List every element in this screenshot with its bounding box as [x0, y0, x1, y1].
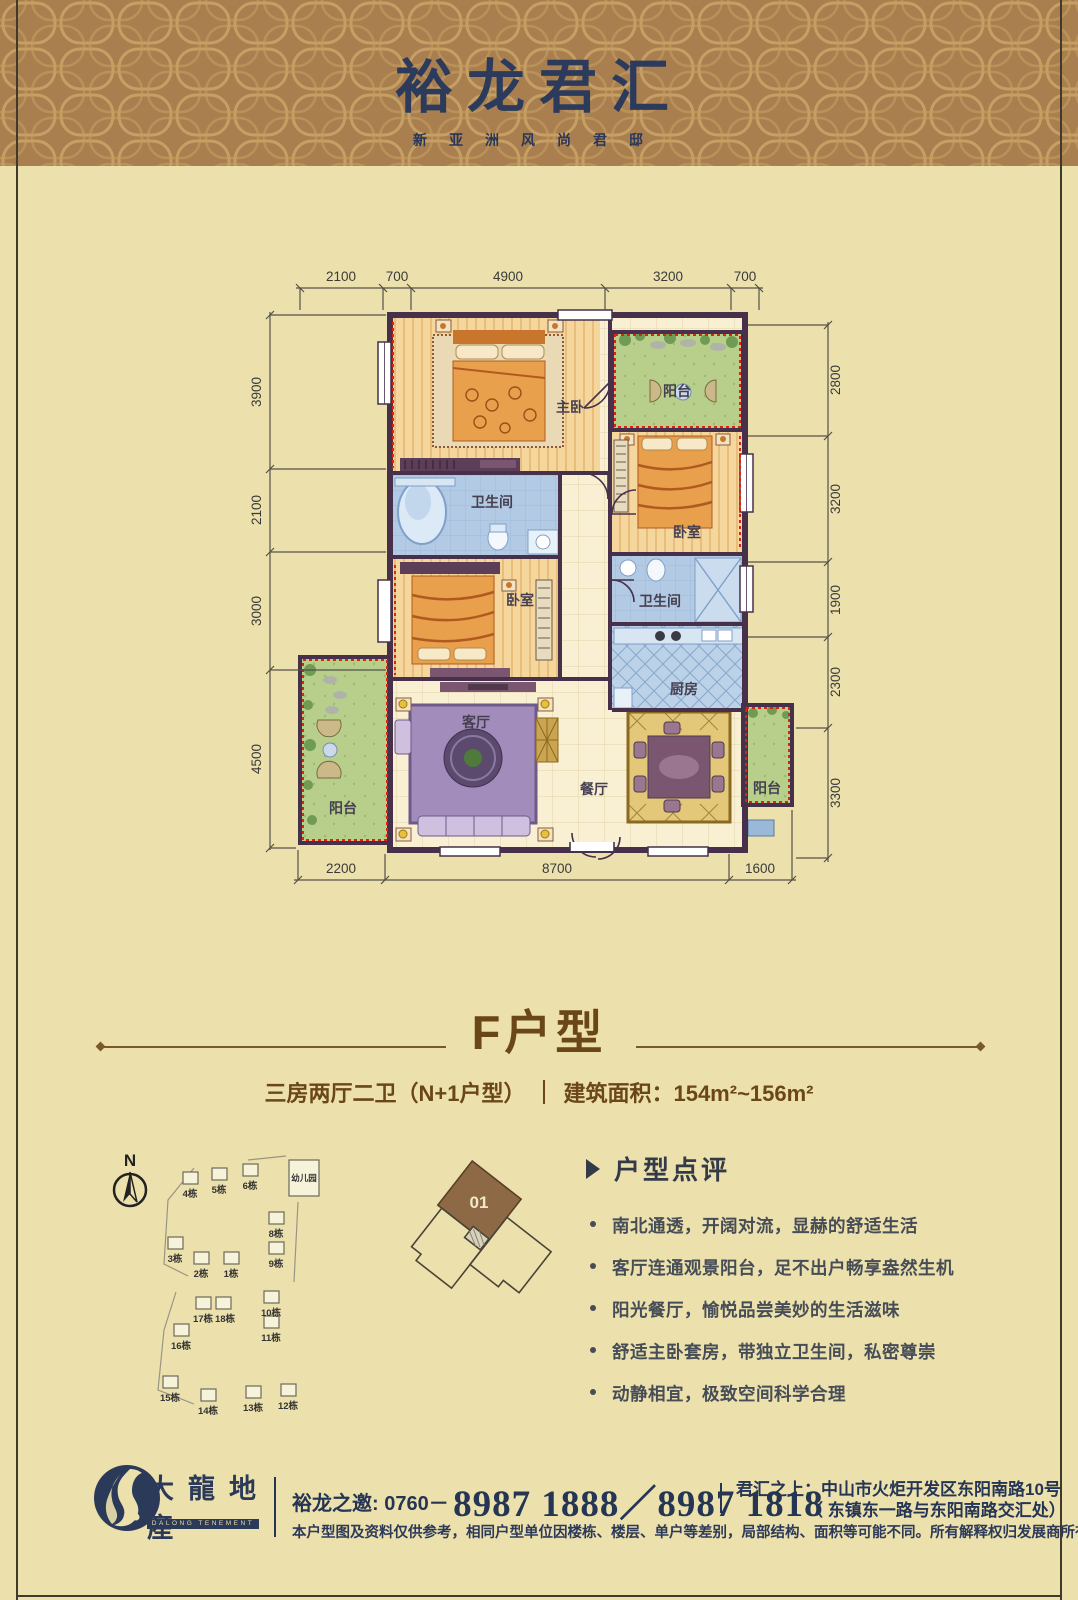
room-label-living: 客厅	[461, 714, 490, 730]
review-point: 客厅连通观景阳台，足不出户畅享盎然生机	[586, 1255, 1006, 1280]
address-line1: 中山市火炬开发区东阳南路10号	[821, 1480, 1061, 1499]
frame-right	[1060, 0, 1062, 1600]
building-label: 13栋	[243, 1402, 264, 1414]
review-point-text: 阳光餐厅，愉悦品尝美妙的生活滋味	[612, 1297, 900, 1322]
building-label: 11栋	[261, 1332, 281, 1344]
unit-title-block: F户型 三房两厅二卫（N+1户型） 建筑面积：154m²~156m²	[0, 1002, 1078, 1108]
review-list: 南北通透，开阔对流，显赫的舒适生活 客厅连通观景阳台，足不出户畅享盎然生机 阳光…	[586, 1213, 1006, 1406]
dim-right-3: 2300	[828, 667, 843, 697]
unit-name: F户型	[0, 1002, 1078, 1064]
building-label: 1栋	[224, 1268, 239, 1280]
review-point: 舒适主卧套房，带独立卫生间，私密尊崇	[586, 1339, 1006, 1364]
building-label: 2栋	[194, 1268, 209, 1280]
building-label: 9栋	[269, 1258, 284, 1270]
room-label-bedroom-right: 卧室	[673, 524, 701, 540]
room-label-bedroom-left: 卧室	[506, 592, 534, 608]
review-point: 阳光餐厅，愉悦品尝美妙的生活滋味	[586, 1297, 1006, 1322]
bullet-dot-icon	[590, 1389, 596, 1395]
building-label: 8栋	[269, 1228, 284, 1240]
living-furniture	[395, 682, 558, 841]
building-label: 6栋	[243, 1180, 258, 1192]
header-band: 裕龙君汇 新亚洲风尚君邸	[0, 0, 1078, 166]
project-logo-subtitle: 新亚洲风尚君邸	[0, 130, 1078, 150]
review-point-text: 客厅连通观景阳台，足不出户畅享盎然生机	[612, 1255, 954, 1280]
dim-right-1: 3200	[828, 484, 843, 514]
footer-divider-2	[720, 1483, 722, 1513]
north-compass: N	[114, 1151, 146, 1206]
building-label: 10栋	[261, 1307, 282, 1319]
building-label: 15栋	[160, 1392, 181, 1404]
room-label-balcony-right: 阳台	[753, 780, 781, 796]
room-label-bath-left: 卫生间	[471, 494, 513, 510]
dim-right-4: 3300	[828, 778, 843, 808]
dim-bottom-1: 8700	[542, 861, 572, 876]
room-label-balcony-top: 阳台	[663, 383, 691, 399]
key-plan: 01	[378, 1140, 573, 1315]
room-label-kitchen: 厨房	[670, 681, 698, 697]
building-label: 4栋	[183, 1188, 198, 1200]
frame-bottom	[16, 1595, 1062, 1597]
review-header: 户型点评	[586, 1150, 1006, 1187]
site-boundary	[158, 1156, 298, 1404]
disclaimer-text: 本户型图及资料仅供参考，相同户型单位因楼栋、楼层、单户等差别，局部结构、面积等可…	[292, 1521, 1078, 1542]
review-title: 户型点评	[614, 1150, 730, 1187]
title-line-right	[636, 1046, 978, 1048]
site-plan: N 4栋 5栋 6栋	[98, 1142, 333, 1437]
address-line2: （ 东镇东一路与东阳南路交汇处）	[736, 1500, 1066, 1521]
poster-page: 裕龙君汇 新亚洲风尚君邸	[0, 0, 1078, 1600]
review-block: 户型点评 南北通透，开阔对流，显赫的舒适生活 客厅连通观景阳台，足不出户畅享盎然…	[586, 1150, 1006, 1423]
review-point-text: 动静相宜，极致空间科学合理	[612, 1381, 846, 1406]
building-label: 17栋	[193, 1313, 214, 1325]
bullet-dot-icon	[590, 1263, 596, 1269]
review-point-text: 南北通透，开阔对流，显赫的舒适生活	[612, 1213, 918, 1238]
review-point: 南北通透，开阔对流，显赫的舒适生活	[586, 1213, 1006, 1238]
room-label-balcony-left: 阳台	[329, 800, 357, 816]
title-line-left	[104, 1046, 446, 1048]
dim-top-0: 2100	[326, 269, 356, 284]
building-label: 16栋	[171, 1340, 192, 1352]
room-label-master: 主卧	[556, 399, 584, 415]
dim-left-0: 3900	[249, 377, 264, 407]
site-buildings: 4栋 5栋 6栋 3栋 2栋 1栋 8栋 9栋 17栋 18栋 16栋 10栋 …	[160, 1160, 319, 1417]
triangle-bullet-icon	[586, 1159, 600, 1179]
bullet-dot-icon	[590, 1221, 596, 1227]
spec-divider	[543, 1080, 545, 1104]
location-block: 君汇之上：中山市火炬开发区东阳南路10号 （ 东镇东一路与东阳南路交汇处）	[736, 1479, 1066, 1521]
dim-top-4: 700	[734, 269, 757, 284]
room-label-bath-right: 卫生间	[639, 593, 681, 609]
project-logo-title: 裕龙君汇	[0, 40, 1078, 124]
unit-area: 建筑面积：154m²~156m²	[563, 1076, 813, 1108]
location-line1: 君汇之上：中山市火炬开发区东阳南路10号	[736, 1479, 1066, 1500]
location-label: 君汇之上：	[736, 1480, 821, 1499]
footer: 大龍地産 DALONG TENEMENT 裕龙之邀: 0760－ 8987 18…	[0, 1455, 1078, 1565]
floorplan-drawing: 主卧 阳台 卧室 卫生间 卧室 卫生间 厨房 客厅 餐厅 阳台 阳台	[240, 250, 860, 900]
room-label-dining: 餐厅	[579, 781, 608, 797]
building-label: 18栋	[215, 1313, 236, 1325]
brand-name-en: DALONG TENEMENT	[147, 1519, 259, 1529]
keyplan-unit-label: 01	[470, 1193, 489, 1212]
north-label: N	[124, 1151, 136, 1170]
dim-bottom-0: 2200	[326, 861, 356, 876]
dim-left-2: 3000	[249, 596, 264, 626]
building-label: 5栋	[212, 1184, 227, 1196]
bullet-dot-icon	[590, 1347, 596, 1353]
unit-layout: 三房两厅二卫（N+1户型）	[264, 1076, 525, 1108]
review-point-text: 舒适主卧套房，带独立卫生间，私密尊崇	[612, 1339, 936, 1364]
unit-spec-row: 三房两厅二卫（N+1户型） 建筑面积：154m²~156m²	[0, 1076, 1078, 1108]
footer-divider-1	[274, 1477, 276, 1537]
dim-right-2: 1900	[828, 585, 843, 615]
dim-right-0: 2800	[828, 365, 843, 395]
dim-top-2: 4900	[493, 269, 523, 284]
dim-left-1: 2100	[249, 495, 264, 525]
kindergarten-label: 幼儿园	[291, 1173, 317, 1183]
dim-left-3: 4500	[249, 744, 264, 774]
bullet-dot-icon	[590, 1305, 596, 1311]
review-point: 动静相宜，极致空间科学合理	[586, 1381, 1006, 1406]
dining-furniture	[628, 712, 730, 822]
dim-bottom-2: 1600	[745, 861, 775, 876]
building-label: 12栋	[278, 1400, 299, 1412]
building-label: 3栋	[168, 1253, 183, 1265]
dim-top-3: 3200	[653, 269, 683, 284]
dim-top-1: 700	[386, 269, 409, 284]
frame-left	[16, 0, 18, 1600]
invite-label: 裕龙之邀: 0760－	[292, 1493, 449, 1515]
brand-name: 大龍地産	[147, 1467, 259, 1545]
building-label: 14栋	[198, 1405, 219, 1417]
